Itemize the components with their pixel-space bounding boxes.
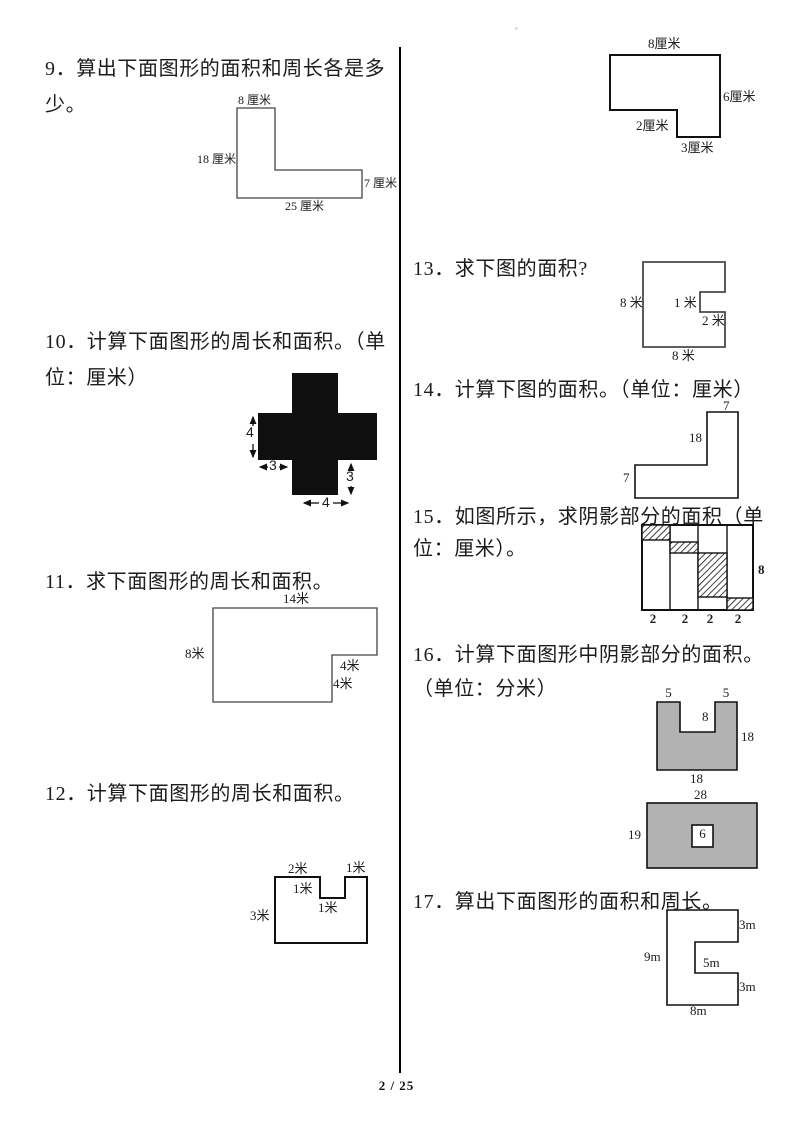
q10-dim-left-notch: 3 [269, 458, 277, 473]
q9-dim-bottom: 25 厘米 [285, 200, 324, 213]
ftr-dim-top: 8厘米 [648, 37, 681, 51]
q16b-dim-top: 28 [694, 788, 707, 802]
q16a-dim-prong-left: 5 [657, 686, 680, 700]
q14-dim-left: 7 [623, 471, 630, 485]
q17-dim-bottom: 8m [690, 1004, 707, 1018]
question-9-text-line1: 9．算出下面图形的面积和周长各是多 [45, 52, 385, 81]
figure-q9-l-shape: 8 厘米 18 厘米 7 厘米 25 厘米 [195, 95, 410, 220]
question-15-text-line2: 位：厘米）。 [413, 532, 527, 561]
q11-shape-drawing [185, 590, 395, 710]
q11-dim-notch-width: 4米 [340, 659, 360, 673]
q15-dim-width-4: 2 [733, 612, 743, 626]
question-16-text-line2: （单位：分米） [413, 672, 557, 701]
figure-q14-l-shape: 7 18 7 [620, 398, 780, 508]
q16a-dim-prong-right: 5 [715, 686, 737, 700]
worksheet-page: 9．算出下面图形的面积和周长各是多 少。 8 厘米 18 厘米 7 厘米 25 … [0, 0, 793, 1122]
q9-dim-right: 7 厘米 [364, 177, 397, 190]
figure-q11-notched-rect: 14米 8米 4米 4米 [185, 590, 395, 710]
q12-dim-top-right: 1米 [346, 861, 366, 875]
page-number: 2 / 25 [0, 1078, 793, 1094]
q11-dim-notch-height: 4米 [333, 677, 353, 691]
q13-dim-notch-depth: 1 米 [674, 296, 697, 310]
q14-shape-drawing [620, 398, 780, 508]
q17-dim-left: 9m [644, 950, 661, 964]
q9-dim-top: 8 厘米 [238, 94, 271, 107]
q16a-dim-bottom: 18 [690, 772, 703, 786]
q13-dim-left: 8 米 [620, 296, 643, 310]
q13-dim-notch-height: 2 米 [702, 314, 725, 328]
q10-dim-left-arm: 4 [246, 425, 254, 440]
figure-q10-cross: 4 3 3 4 [245, 370, 385, 515]
figure-q17-c-shape: 3m 9m 5m 3m 8m [640, 905, 775, 1023]
q11-dim-left: 8米 [185, 647, 205, 661]
q12-dim-notch-bottom: 1米 [318, 901, 338, 915]
q13-dim-bottom: 8 米 [672, 349, 695, 363]
question-10-text-line2: 位：厘米） [45, 361, 148, 390]
q9-dim-left: 18 厘米 [197, 153, 236, 166]
q11-dim-top: 14米 [283, 592, 309, 606]
figure-top-right-l-shape: 8厘米 6厘米 2厘米 3厘米 [600, 30, 770, 160]
q12-dim-left: 3米 [250, 909, 270, 923]
figure-q13-notched-square: 8 米 1 米 2 米 8 米 [610, 252, 780, 367]
ftr-dim-right: 6厘米 [723, 90, 756, 104]
q15-dim-width-3: 2 [705, 612, 715, 626]
ftr-dim-step: 2厘米 [636, 119, 669, 133]
q16b-dim-left: 19 [628, 828, 641, 842]
print-artifact-dot [515, 27, 518, 30]
figure-q16-rect-with-hole: 28 19 6 [626, 788, 766, 876]
q17-dim-top-right: 3m [739, 918, 756, 932]
figure-q12-notched-rect: 2米 1米 1米 1米 3米 [250, 858, 380, 958]
q10-shape-drawing [245, 370, 385, 515]
question-12-text-line1: 12．计算下面图形的周长和面积。 [45, 777, 355, 806]
q10-dim-bottom-arm: 4 [322, 495, 330, 510]
q16b-dim-inner: 6 [692, 827, 713, 841]
q15-dim-height: 8 [758, 563, 765, 577]
q17-dim-notch: 5m [703, 956, 720, 970]
q14-dim-top: 7 [723, 399, 730, 413]
q17-dim-bottom-right: 3m [739, 980, 756, 994]
ftr-dim-bottom: 3厘米 [681, 141, 714, 155]
q10-dim-right-notch: 3 [346, 469, 354, 484]
q16a-dim-notch: 8 [702, 710, 709, 724]
q12-dim-top-left: 2米 [288, 862, 308, 876]
question-10-text-line1: 10．计算下面图形的周长和面积。（单 [45, 325, 386, 354]
figure-q15-shaded-strips: 8 2 2 2 2 [630, 520, 793, 632]
q15-dim-width-1: 2 [648, 612, 658, 626]
question-9-text-line2: 少。 [45, 88, 86, 117]
question-16-text-line1: 16．计算下面图形中阴影部分的面积。 [413, 638, 764, 667]
q12-dim-notch-side: 1米 [293, 882, 313, 896]
q14-dim-inner: 18 [689, 431, 702, 445]
q16a-dim-right: 18 [741, 730, 754, 744]
figure-q16-u-shape: 5 5 8 18 18 [645, 685, 765, 787]
question-13-text-line1: 13．求下图的面积? [413, 252, 588, 281]
q15-dim-width-2: 2 [680, 612, 690, 626]
